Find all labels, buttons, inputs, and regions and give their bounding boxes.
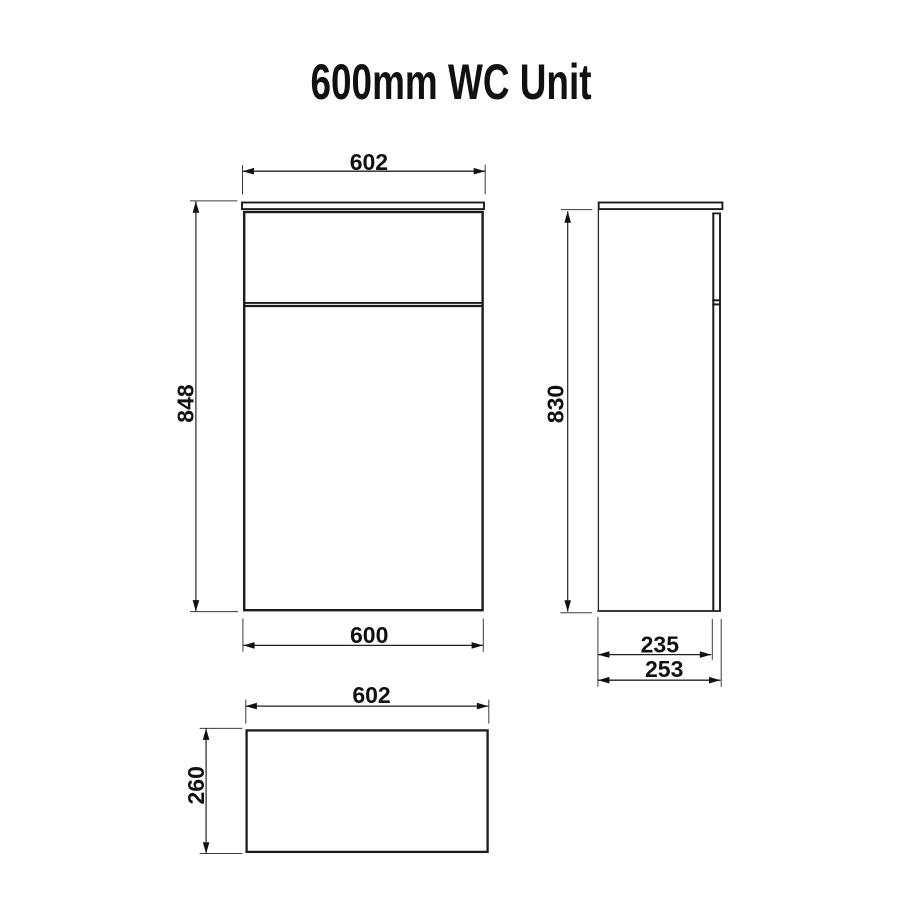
svg-text:260: 260 — [183, 766, 209, 804]
svg-text:235: 235 — [641, 631, 680, 657]
svg-text:600mm WC Unit: 600mm WC Unit — [311, 54, 592, 110]
svg-text:602: 602 — [352, 682, 390, 708]
svg-text:848: 848 — [172, 384, 198, 423]
svg-text:830: 830 — [543, 385, 569, 423]
svg-text:600: 600 — [350, 622, 388, 648]
svg-text:253: 253 — [645, 656, 683, 682]
svg-text:602: 602 — [350, 149, 388, 175]
